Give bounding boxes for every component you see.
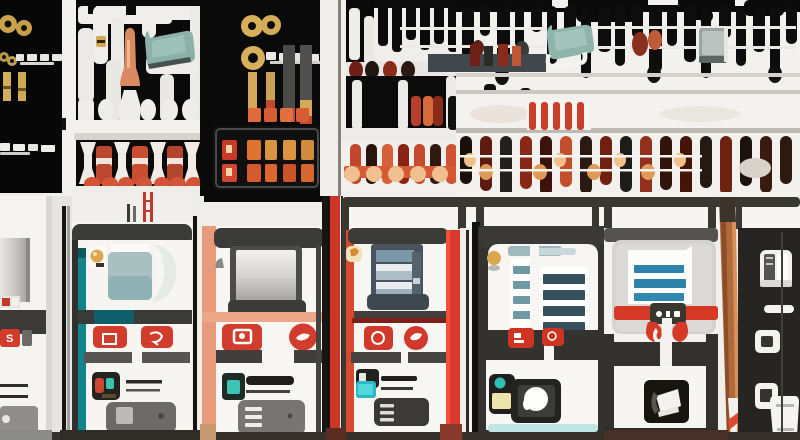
svg-text:S: S [6,333,13,345]
